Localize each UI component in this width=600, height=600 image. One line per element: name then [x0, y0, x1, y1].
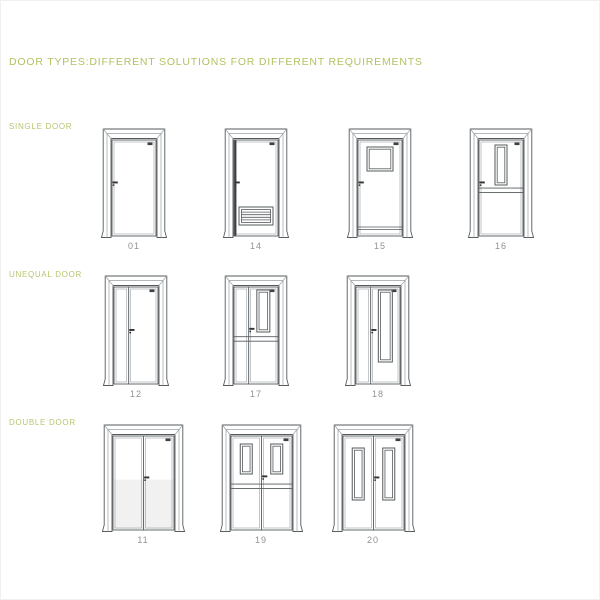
door-number-label: 16 — [495, 241, 507, 251]
door-window — [382, 448, 394, 500]
door-20-drawing — [332, 423, 415, 532]
door-number-label: 01 — [128, 241, 140, 251]
door-window — [240, 444, 252, 474]
section-label-single-door: SINGLE DOOR — [9, 122, 72, 131]
door-closer-icon — [148, 143, 153, 146]
door-11: 11 — [102, 423, 185, 545]
door-figure — [220, 425, 302, 532]
door-14-drawing — [223, 127, 289, 238]
door-01-drawing — [101, 127, 167, 238]
section-label-unequal-door: UNEQUAL DOOR — [9, 270, 82, 279]
door-11-drawing — [102, 423, 185, 532]
door-number-label: 18 — [372, 389, 384, 399]
door-frame — [224, 129, 289, 238]
door-16-drawing — [468, 127, 534, 238]
door-17-drawing — [223, 274, 289, 386]
door-window — [495, 145, 507, 185]
door-window — [367, 147, 393, 171]
door-catalog-page: DOOR TYPES:DIFFERENT SOLUTIONS FOR DIFFE… — [0, 0, 600, 600]
door-figure — [102, 129, 167, 238]
page-title: DOOR TYPES:DIFFERENT SOLUTIONS FOR DIFFE… — [9, 56, 423, 68]
door-closer-icon — [394, 143, 399, 146]
door-figure — [332, 425, 414, 532]
door-figure — [102, 425, 184, 532]
door-handle-icon — [371, 329, 376, 334]
door-number-label: 20 — [367, 535, 379, 545]
door-number-label: 19 — [255, 535, 267, 545]
door-window — [352, 448, 364, 500]
door-frame — [224, 276, 289, 386]
door-closer-icon — [150, 290, 155, 293]
door-number-label: 11 — [137, 535, 148, 545]
door-leaf — [112, 140, 156, 236]
door-handle-icon — [113, 182, 118, 187]
door-15-drawing — [347, 127, 413, 238]
door-01: 01 — [101, 127, 167, 251]
door-closer-icon — [515, 143, 520, 146]
door-15: 15 — [347, 127, 413, 251]
door-figure — [104, 276, 169, 386]
door-frame — [104, 276, 169, 386]
door-number-label: 12 — [130, 389, 142, 399]
section-label-double-door: DOUBLE DOOR — [9, 418, 76, 427]
door-20: 20 — [332, 423, 415, 545]
door-16: 16 — [468, 127, 534, 251]
door-closer-icon — [283, 439, 288, 442]
door-number-label: 14 — [250, 241, 262, 251]
door-18-drawing — [345, 274, 411, 386]
door-handle-icon — [480, 182, 485, 187]
door-closer-icon — [165, 439, 170, 442]
door-window — [257, 290, 270, 332]
door-number-label: 15 — [374, 241, 386, 251]
door-12-drawing — [103, 274, 169, 386]
door-figure — [348, 129, 413, 238]
door-19: 19 — [220, 423, 303, 545]
door-handle-icon — [249, 328, 254, 333]
door-handle-icon — [262, 475, 267, 480]
door-leaf — [358, 140, 402, 236]
door-14: 14 — [223, 127, 289, 251]
door-window — [378, 290, 392, 362]
door-18: 18 — [345, 274, 411, 399]
door-12: 12 — [103, 274, 169, 399]
louver-vent-icon — [239, 207, 273, 225]
door-closer-icon — [395, 439, 400, 442]
door-figure — [224, 129, 289, 238]
door-handle-icon — [374, 477, 379, 482]
door-19-drawing — [220, 423, 303, 532]
door-handle-icon — [359, 182, 364, 187]
door-closer-icon — [270, 143, 275, 146]
door-17: 17 — [223, 274, 289, 399]
door-figure — [224, 276, 289, 386]
door-figure — [346, 276, 411, 386]
door-frame — [102, 129, 167, 238]
door-handle-icon — [129, 329, 134, 334]
door-leaf — [234, 140, 278, 236]
door-figure — [469, 129, 534, 238]
door-window — [270, 444, 282, 474]
door-leaf — [234, 287, 278, 384]
door-leaf — [114, 287, 158, 384]
door-frame — [348, 129, 413, 238]
door-number-label: 17 — [250, 389, 262, 399]
